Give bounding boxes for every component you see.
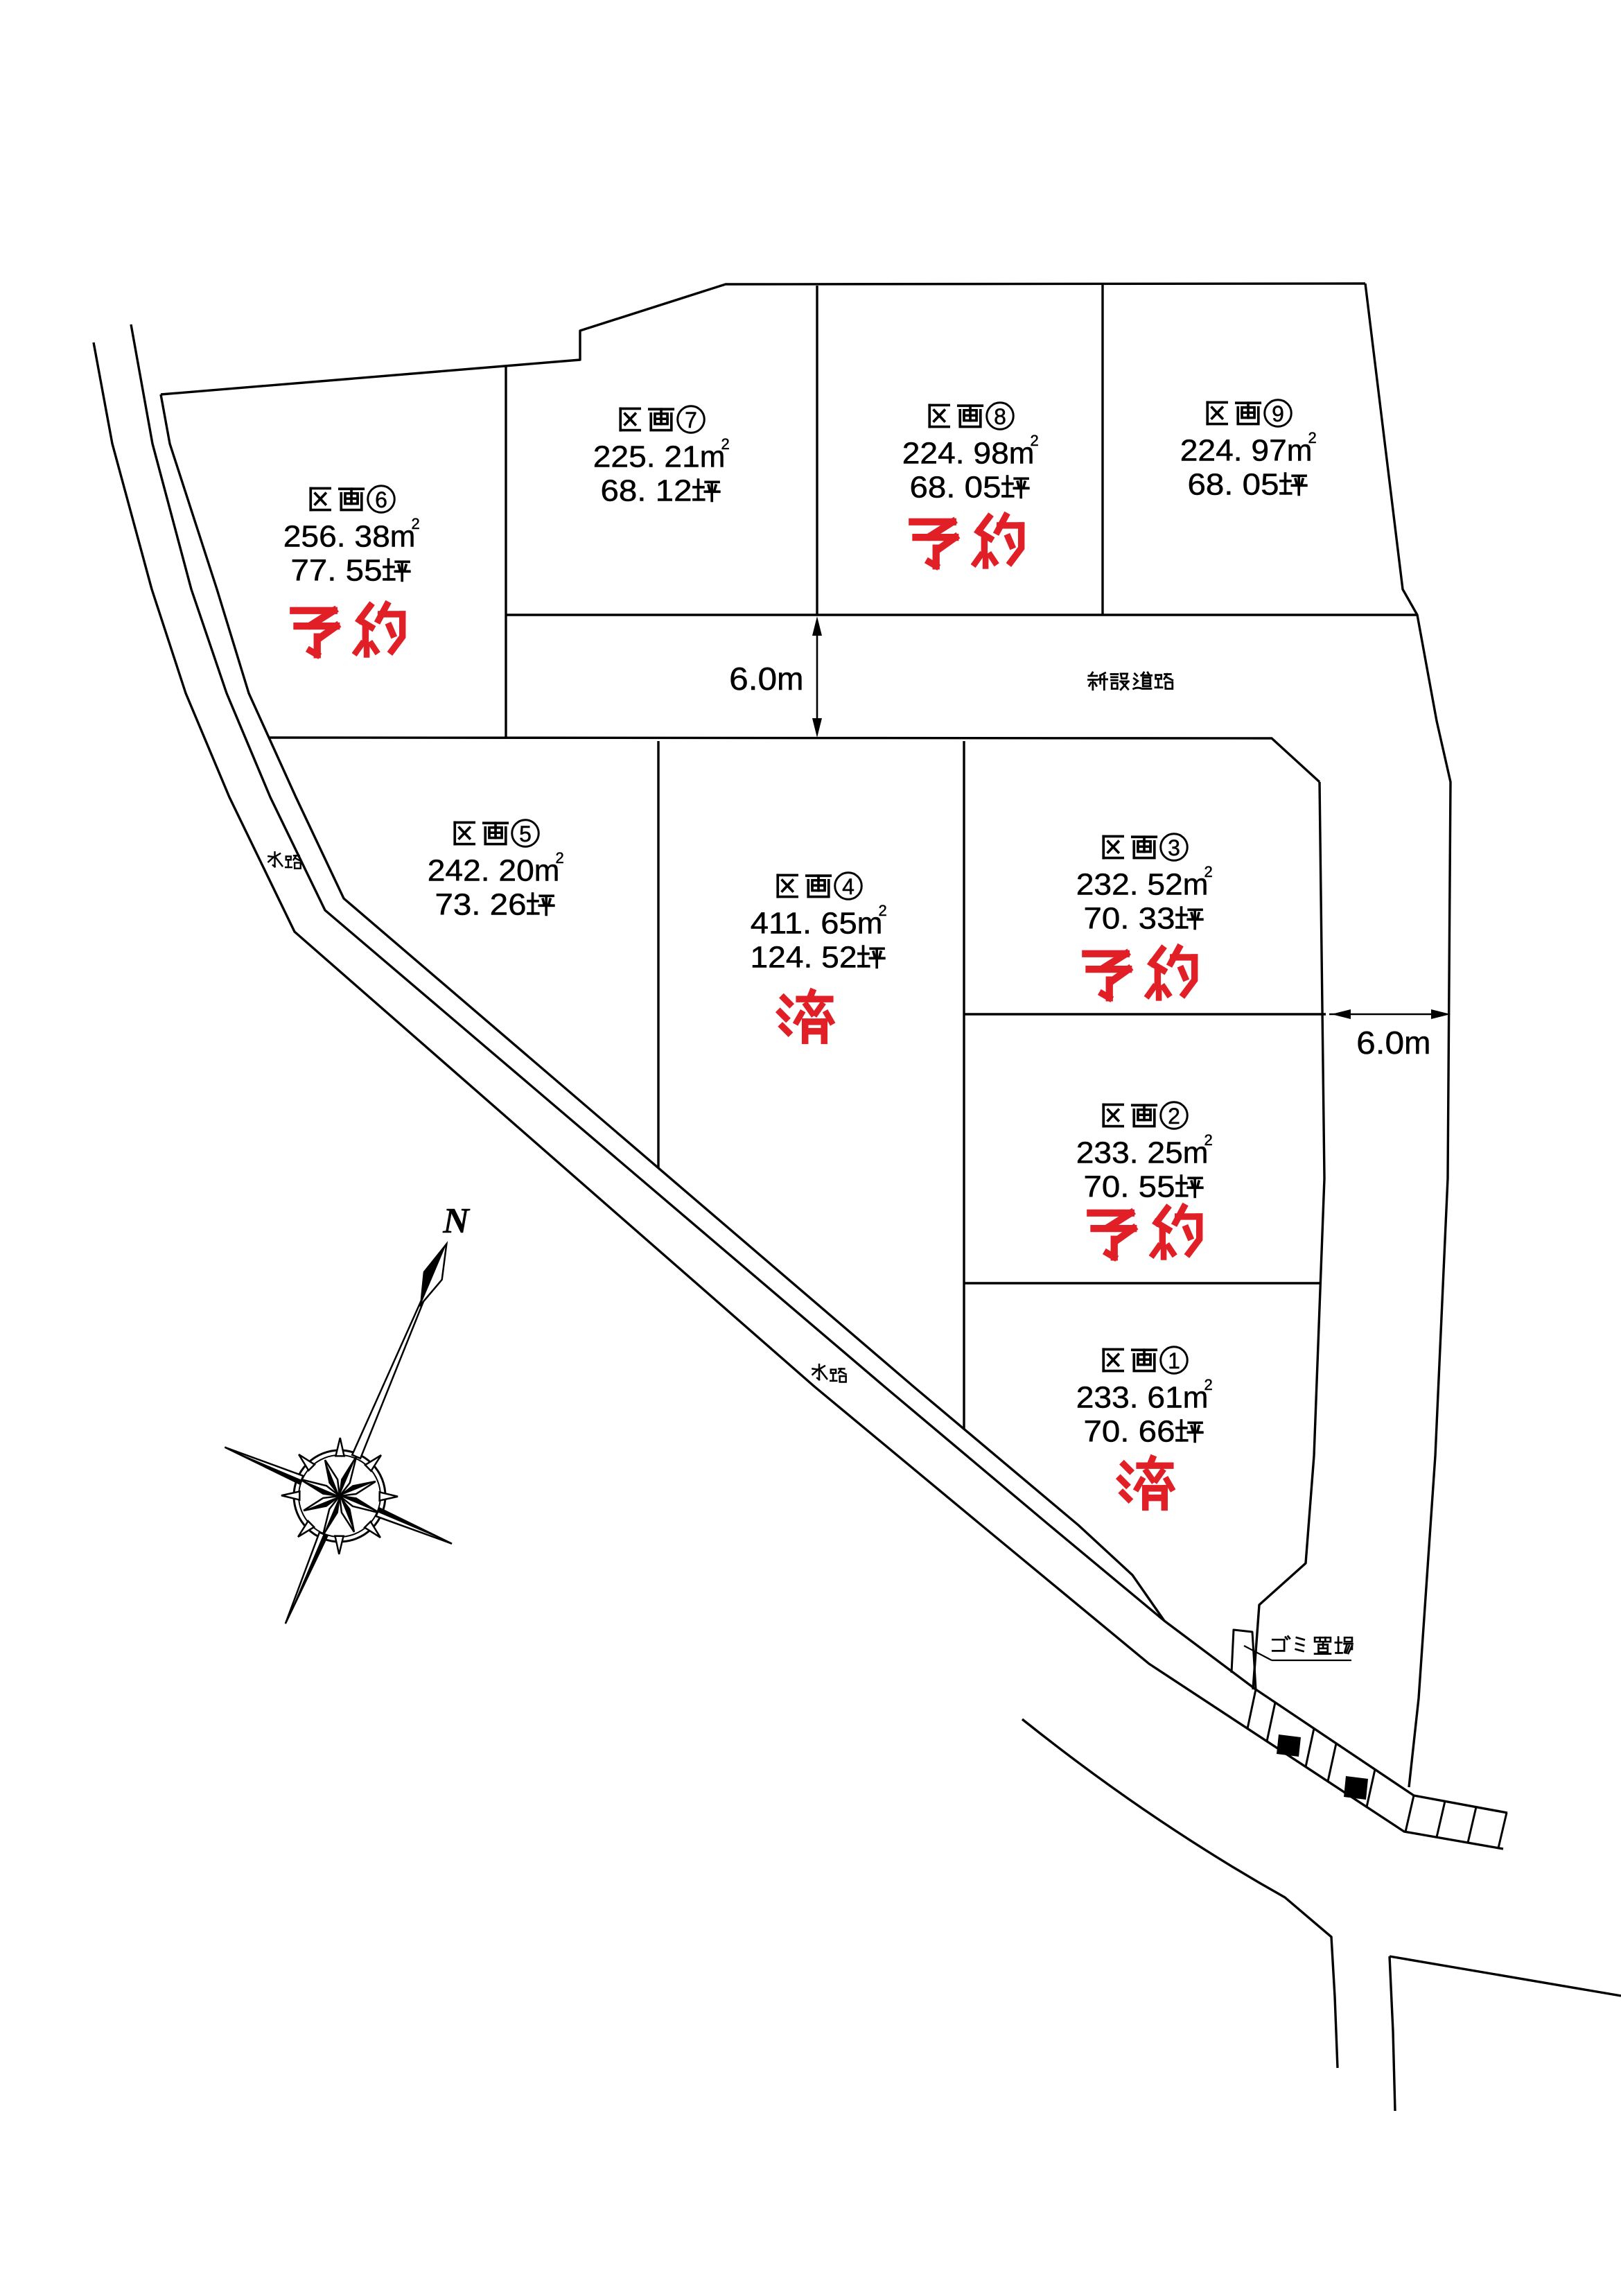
- svg-text:9: 9: [1272, 401, 1284, 426]
- svg-text:73. 26: 73. 26: [435, 888, 527, 922]
- svg-text:6.0: 6.0: [729, 661, 777, 697]
- svg-text:2: 2: [878, 902, 886, 919]
- svg-text:2: 2: [411, 515, 419, 532]
- svg-text:5: 5: [519, 821, 532, 846]
- svg-text:233. 61: 233. 61: [1076, 1381, 1183, 1415]
- svg-text:2: 2: [555, 849, 563, 867]
- svg-text:68. 12: 68. 12: [601, 474, 692, 508]
- svg-text:233. 25: 233. 25: [1076, 1136, 1183, 1170]
- svg-text:411. 65: 411. 65: [751, 907, 857, 941]
- svg-text:68. 05: 68. 05: [1188, 468, 1279, 502]
- svg-text:4: 4: [842, 874, 855, 899]
- svg-text:256. 38: 256. 38: [283, 520, 390, 554]
- svg-text:2: 2: [1204, 1376, 1212, 1393]
- svg-text:77. 55: 77. 55: [291, 554, 383, 588]
- svg-text:68. 05: 68. 05: [910, 471, 1001, 505]
- svg-text:6: 6: [375, 487, 387, 512]
- svg-text:m: m: [777, 661, 803, 697]
- svg-text:2: 2: [721, 435, 729, 453]
- svg-text:3: 3: [1168, 835, 1180, 860]
- svg-text:8: 8: [994, 404, 1006, 429]
- svg-text:7: 7: [685, 408, 697, 433]
- svg-text:m: m: [1404, 1025, 1430, 1061]
- svg-text:2: 2: [1308, 429, 1316, 446]
- svg-text:70. 66: 70. 66: [1084, 1415, 1175, 1449]
- svg-text:224. 98: 224. 98: [902, 437, 1009, 471]
- svg-text:225. 21: 225. 21: [593, 440, 700, 474]
- svg-text:1: 1: [1168, 1348, 1180, 1373]
- svg-text:2: 2: [1030, 432, 1038, 449]
- svg-text:6.0: 6.0: [1356, 1025, 1404, 1061]
- svg-text:124. 52: 124. 52: [751, 941, 857, 975]
- svg-text:N: N: [442, 1201, 471, 1241]
- svg-text:232. 52: 232. 52: [1076, 868, 1183, 902]
- svg-text:70. 55: 70. 55: [1084, 1170, 1175, 1204]
- svg-text:2: 2: [1204, 863, 1212, 880]
- svg-text:224. 97: 224. 97: [1180, 434, 1287, 468]
- svg-text:242. 20: 242. 20: [428, 854, 534, 888]
- svg-text:70. 33: 70. 33: [1084, 902, 1175, 936]
- svg-text:2: 2: [1204, 1131, 1212, 1149]
- svg-text:2: 2: [1168, 1104, 1180, 1129]
